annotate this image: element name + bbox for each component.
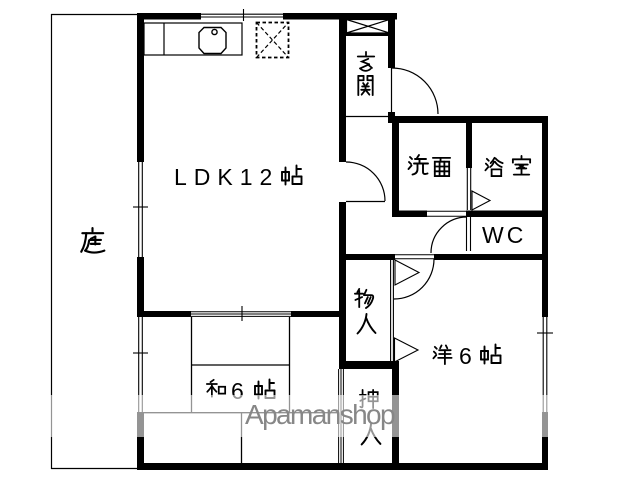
- svg-text:Apamanshop: Apamanshop: [245, 399, 395, 430]
- svg-text:6: 6: [459, 343, 472, 369]
- svg-text:WC: WC: [482, 222, 526, 248]
- svg-text:LDK12: LDK12: [174, 164, 279, 190]
